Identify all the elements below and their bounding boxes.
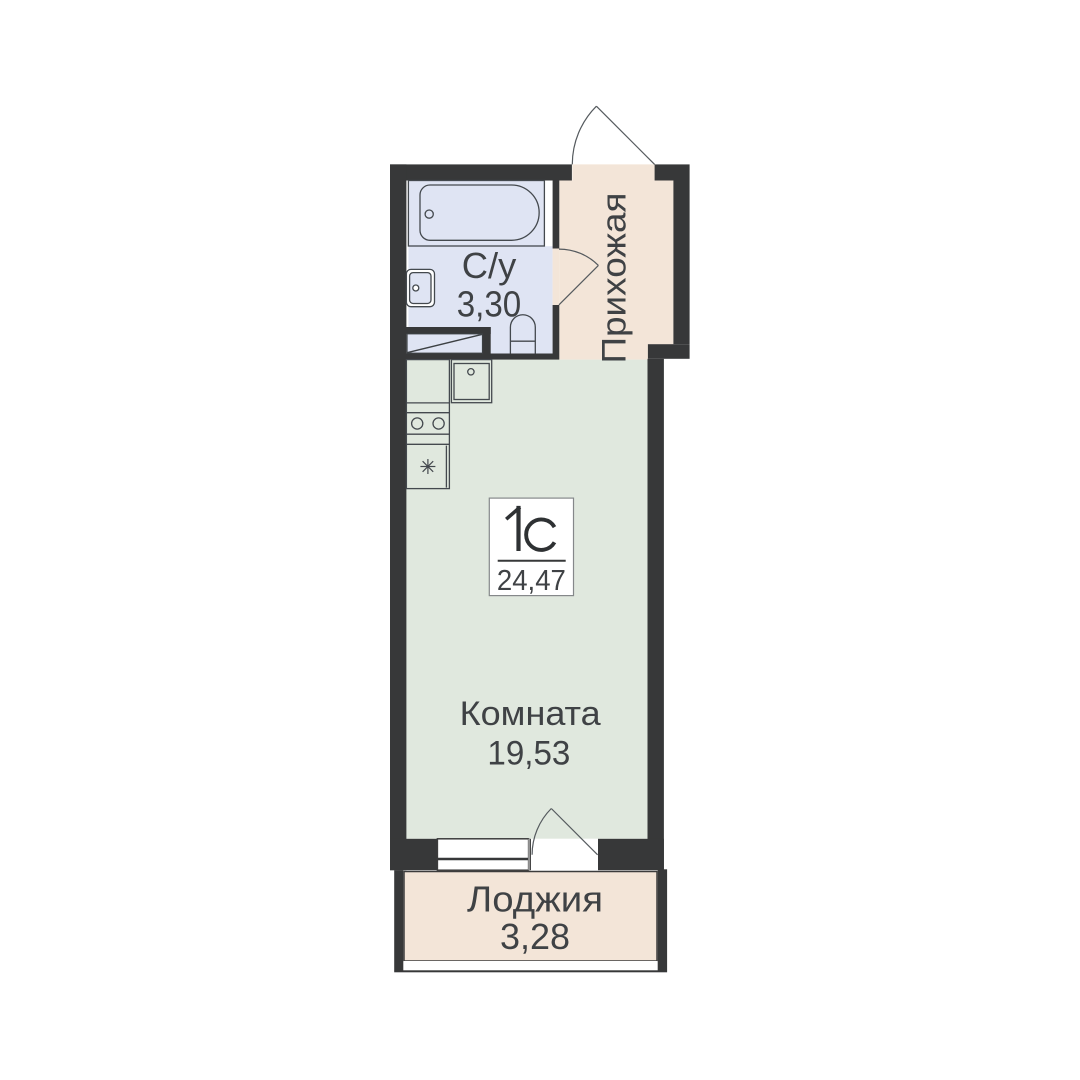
svg-text:Прихожая: Прихожая [596,193,634,364]
svg-text:24,47: 24,47 [497,565,566,597]
svg-text:С/у: С/у [462,245,517,286]
svg-text:Лоджия: Лоджия [467,878,603,919]
svg-text:Комната: Комната [460,695,601,733]
svg-text:19,53: 19,53 [487,735,570,773]
svg-text:3,28: 3,28 [500,916,570,957]
svg-text:3,30: 3,30 [457,284,522,325]
